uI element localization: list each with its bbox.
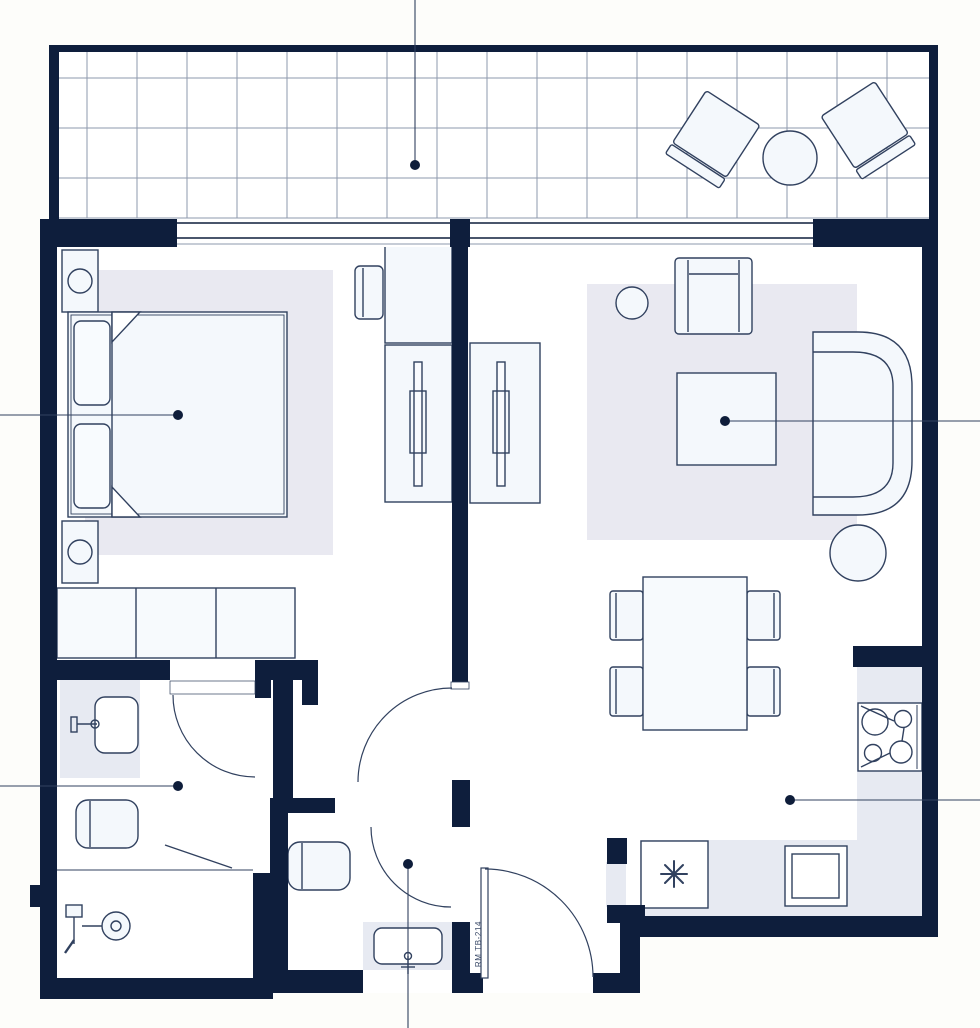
wall-left-bump xyxy=(30,885,40,907)
patio-round-table xyxy=(763,131,817,185)
wall-closet-right xyxy=(255,660,318,680)
floor-plan-canvas: RM TB-214 xyxy=(0,0,980,1028)
table-lamp-icon xyxy=(68,540,92,564)
wall-wc-left xyxy=(270,798,288,970)
leader-dot-living xyxy=(720,416,730,426)
wall-window-left-block xyxy=(40,219,177,247)
balcony-wall-top xyxy=(49,45,938,52)
wall-closet-left xyxy=(40,660,170,680)
toilet-bathroom xyxy=(76,800,138,848)
wall-wc-bottom xyxy=(253,970,363,993)
balcony-wall-right xyxy=(929,45,938,219)
outside-patch-right xyxy=(628,937,938,1028)
window-living xyxy=(470,219,813,247)
tv-cabinet-bedroom xyxy=(385,345,452,502)
wall-bathroom-right xyxy=(273,660,293,798)
toilet-wc xyxy=(288,842,350,890)
dining-chair xyxy=(610,591,643,640)
asterisk-icon xyxy=(661,861,687,887)
pillow xyxy=(74,321,110,405)
leader-dot-wc xyxy=(403,859,413,869)
leader-dot-bathroom xyxy=(173,781,183,791)
wall-outer-right xyxy=(922,247,938,916)
tv-icon xyxy=(497,362,505,486)
wall-middle-divider xyxy=(452,219,468,682)
dining-chair xyxy=(747,591,780,640)
nightstand-top xyxy=(62,250,98,312)
room-label: RM TB-214 xyxy=(474,921,483,967)
leader-dot-balcony xyxy=(410,160,420,170)
floor-plan: RM TB-214 xyxy=(0,0,980,1028)
window-bedroom xyxy=(177,219,450,247)
shower-drain xyxy=(102,912,130,940)
outside-patch-bottom xyxy=(270,993,628,1028)
armchair xyxy=(675,258,752,334)
dining-table xyxy=(643,577,747,730)
sofa xyxy=(813,332,912,515)
stove xyxy=(858,703,922,771)
pillow xyxy=(74,424,110,508)
wall-shower-bottom xyxy=(40,978,270,999)
wall-wc-vanity-side xyxy=(452,922,470,993)
desk xyxy=(385,243,452,343)
dining-chair xyxy=(747,667,780,716)
wall-outer-left xyxy=(40,246,57,978)
wall-kitchen-top-stub xyxy=(853,646,922,667)
round-table xyxy=(830,525,886,581)
side-table xyxy=(616,287,648,319)
leader-dot-bedroom xyxy=(173,410,183,420)
leader-dot-kitchen xyxy=(785,795,795,805)
balcony-wall-left xyxy=(49,45,59,219)
tv-cabinet-living xyxy=(470,343,540,503)
door-threshold-bathroom xyxy=(170,681,255,694)
windows xyxy=(177,219,813,247)
wall-wc-door-stub xyxy=(452,780,470,827)
tv-icon xyxy=(414,362,422,486)
wall-kitchen-bottom xyxy=(628,916,938,937)
wardrobe-3-door xyxy=(57,588,295,658)
wall-bath-door-block xyxy=(302,680,318,705)
desk-chair xyxy=(355,266,383,319)
wall-entry-upper xyxy=(607,838,627,864)
table-lamp-icon xyxy=(68,269,92,293)
entry-partition xyxy=(606,862,626,907)
nightstand-bottom xyxy=(62,521,98,583)
oven xyxy=(785,846,847,906)
wall-window-right-block xyxy=(813,219,938,247)
dining-chair xyxy=(610,667,643,716)
door-jamb-cap xyxy=(451,682,469,689)
wall-bath-door-hinge xyxy=(255,680,271,698)
asterisk-appliance xyxy=(641,841,708,908)
